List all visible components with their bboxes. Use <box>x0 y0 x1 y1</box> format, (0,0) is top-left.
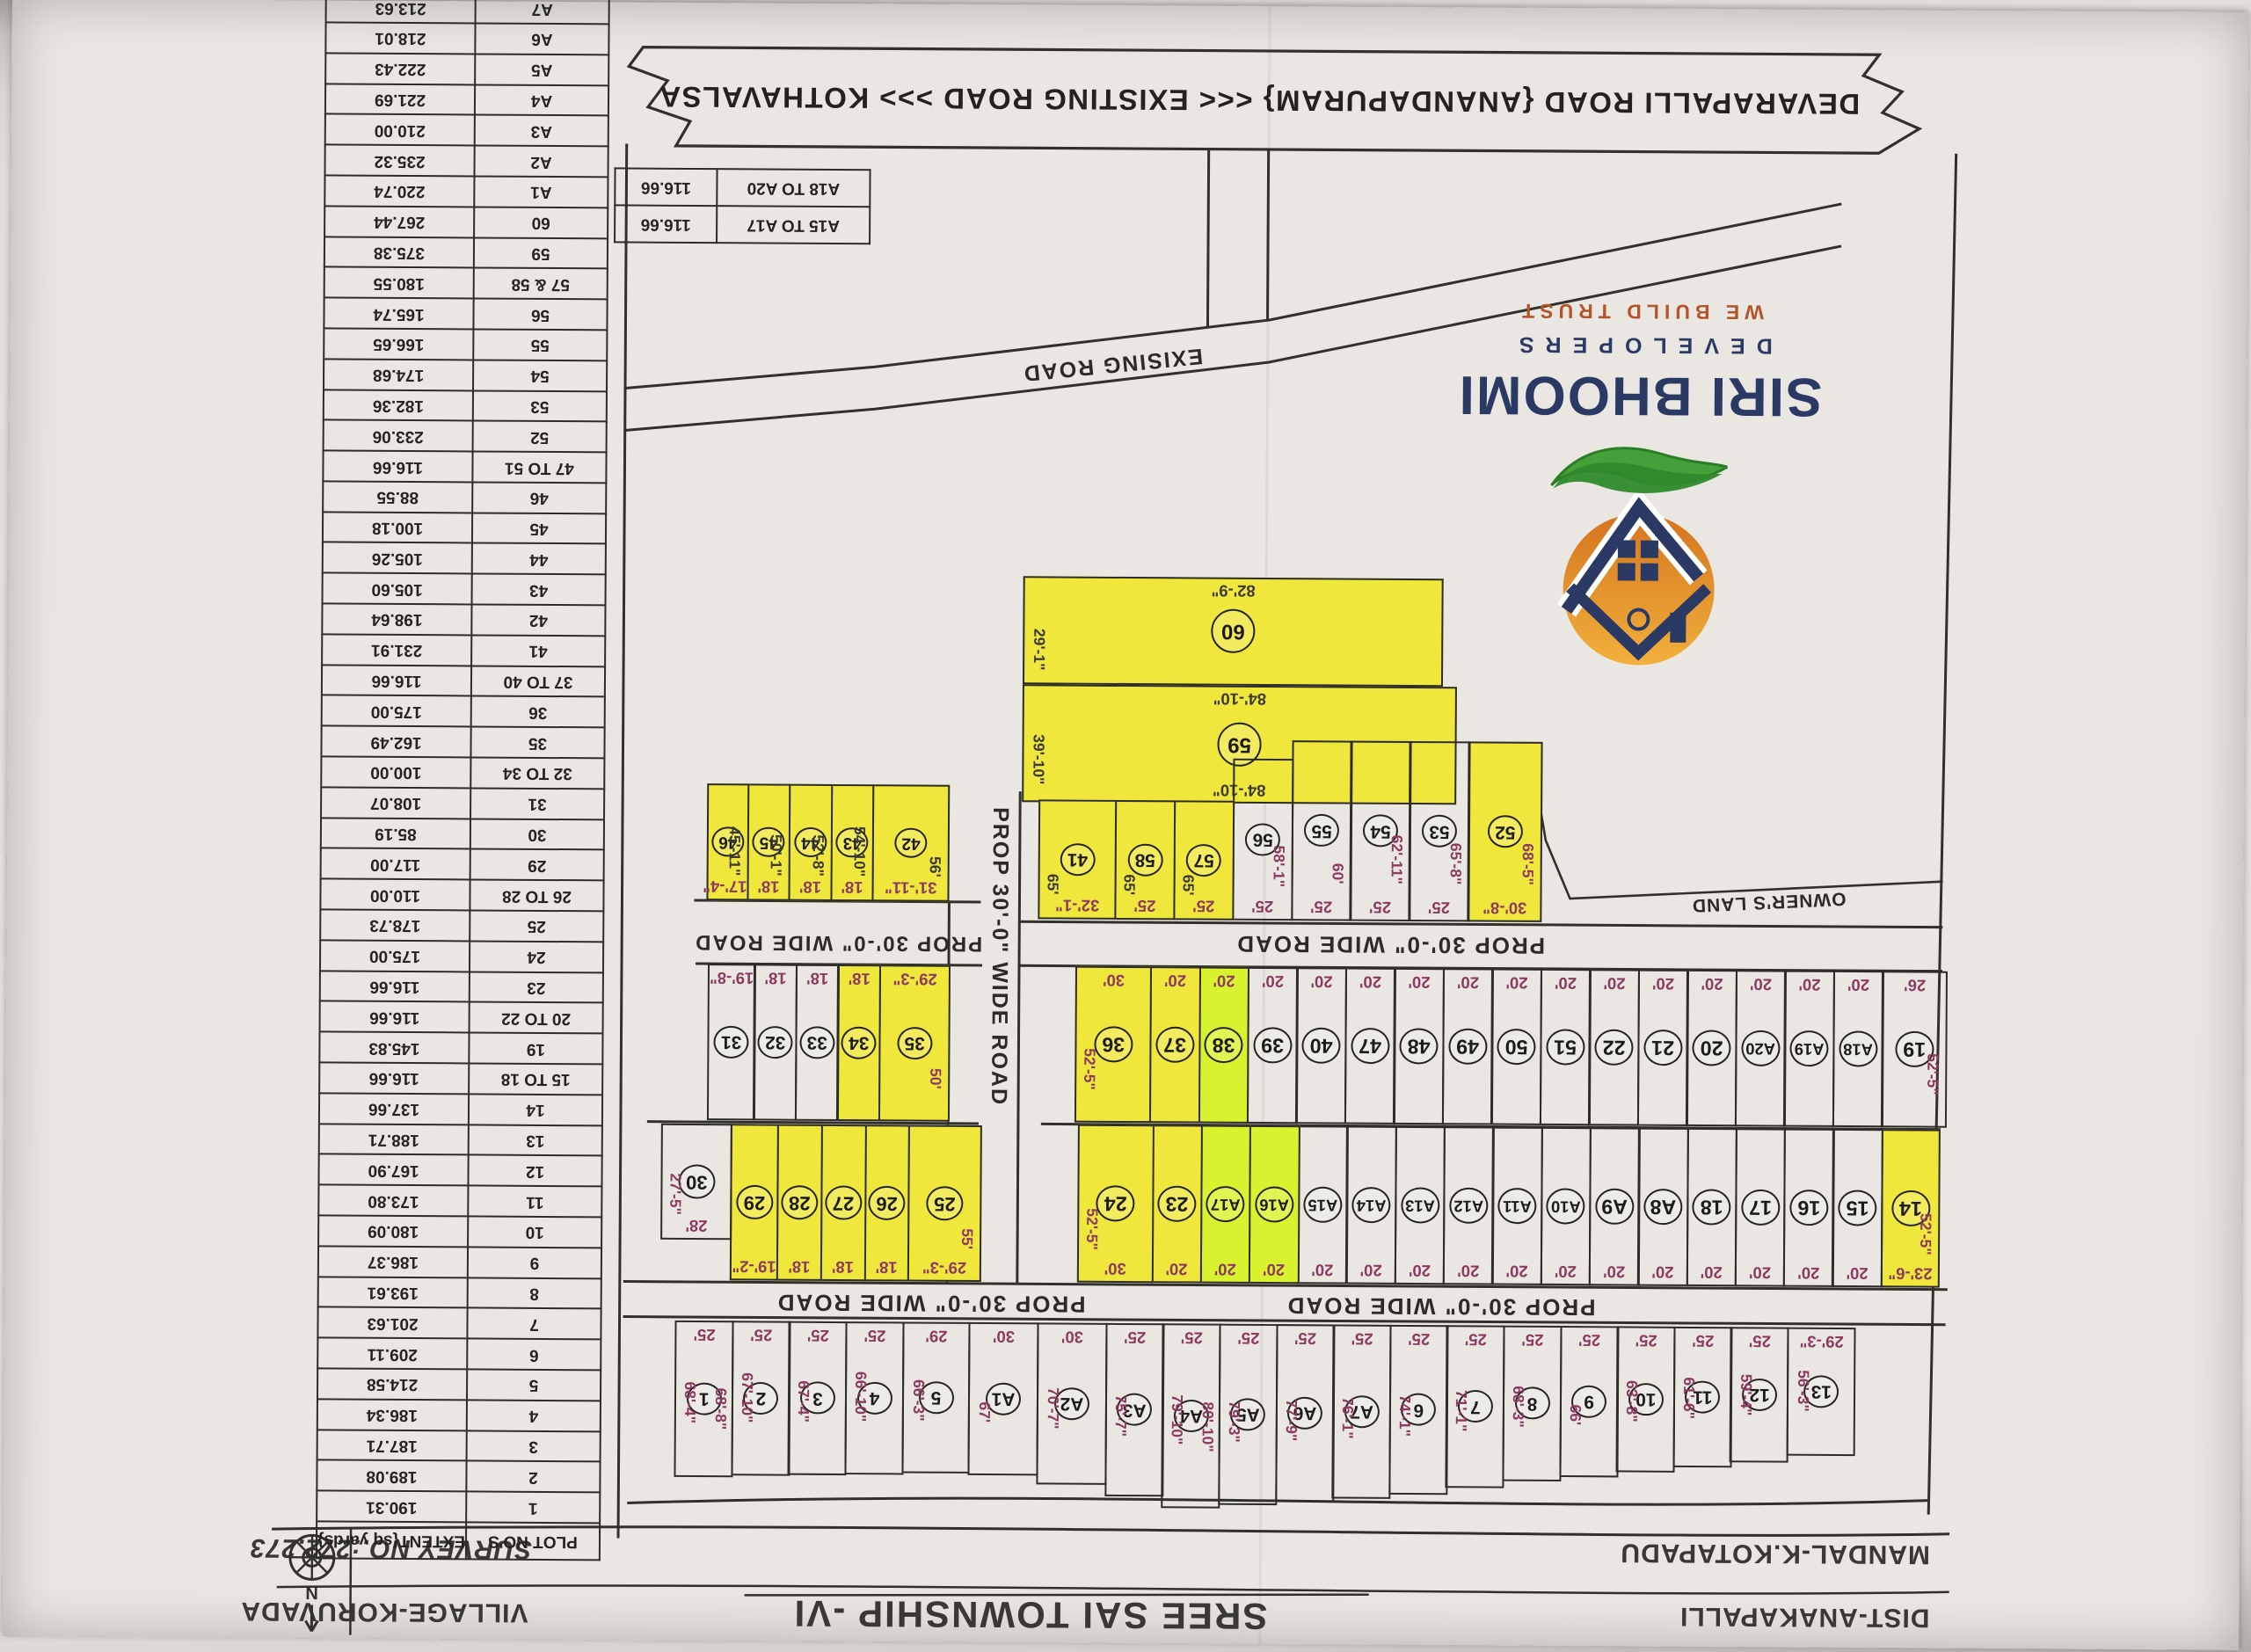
plot-4: 25'466'-10" <box>845 1321 905 1474</box>
plot-46: 17'-4"4645'-11" <box>706 783 749 900</box>
plot-37: 20'37 <box>1149 966 1201 1123</box>
table-row: 23116.66 <box>320 971 603 1003</box>
plot-34-number: 34 <box>841 1026 877 1059</box>
plot-A2-width: 30' <box>1038 1327 1105 1346</box>
extent-cell: 100.00 <box>321 756 470 788</box>
plotno-cell: 11 <box>468 1186 601 1218</box>
plotno-cell: A3 <box>475 115 608 147</box>
plot-A12-number: A12 <box>1449 1188 1488 1224</box>
plot-A18: 20'A18 <box>1832 971 1884 1127</box>
plot-14-width: 23'-6" <box>1883 1263 1939 1283</box>
plot-36-number: 36 <box>1094 1026 1133 1062</box>
ref-a18-val: 116.66 <box>615 168 717 206</box>
plot-15: 20'15 <box>1832 1129 1883 1287</box>
plot-38-width: 20' <box>1200 972 1248 991</box>
plotno-cell: A7 <box>476 0 609 24</box>
plotno-cell: 19 <box>469 1033 602 1065</box>
developer-logo: SIRI BHOOMI DEVELOPERS WE BUILD TRUST <box>1436 298 1843 695</box>
plot-31-number: 31 <box>714 1026 749 1059</box>
logo-sub: DEVELOPERS <box>1438 331 1842 359</box>
plot-17: 20'17 <box>1735 1128 1787 1286</box>
plotno-cell: 42 <box>471 605 605 637</box>
plot-3-width: 25' <box>790 1326 846 1345</box>
table-row: 25178.73 <box>320 909 603 942</box>
plot-18-number: 18 <box>1693 1190 1731 1226</box>
plot-A16: 20'A16 <box>1249 1125 1300 1284</box>
table-row: 35162.49 <box>321 726 604 759</box>
plotno-cell: A4 <box>475 84 608 116</box>
plot-23-width: 20' <box>1153 1259 1200 1278</box>
plot-58-number: 58 <box>1127 843 1162 876</box>
plot-row-row3135: 29'-3"3550'18'3418'3318'3219'-8"31 <box>696 964 949 1122</box>
plot-20-width: 20' <box>1688 974 1736 993</box>
extent-cell: 178.73 <box>320 909 470 941</box>
owners-land-label: OWNER'S LAND <box>1691 887 1847 915</box>
plotno-cell: 8 <box>468 1277 601 1309</box>
table-row: A6218.01 <box>325 22 608 55</box>
plot-6: 25'674'-1" <box>1388 1325 1448 1495</box>
table-row: 14137.66 <box>319 1093 602 1125</box>
extent-cell: 267.44 <box>324 206 474 237</box>
plot-47: 20'47 <box>1344 968 1396 1124</box>
extent-cell: 167.90 <box>318 1154 468 1186</box>
plot-A1-width: 30' <box>970 1327 1037 1346</box>
plot-58-side: 65' <box>1119 874 1138 895</box>
plot-8: 25'868'-3" <box>1502 1326 1562 1481</box>
table-row: 24175.00 <box>320 940 603 972</box>
extent-cell: 213.63 <box>326 0 476 23</box>
plot-60-number: 60 <box>1211 609 1255 653</box>
plot-13: 29'-3"1356'-3" <box>1787 1328 1856 1456</box>
table-row: 10180.09 <box>318 1215 601 1248</box>
plot-15-number: 15 <box>1838 1190 1876 1226</box>
plot-48-width: 20' <box>1395 972 1443 992</box>
plot-A13-number: A13 <box>1401 1188 1439 1224</box>
table-row: 59375.38 <box>324 237 608 269</box>
plot-35: 29'-3"3550' <box>878 964 951 1121</box>
plot-31: 19'-8"31 <box>707 964 756 1120</box>
plot-18: 20'18 <box>1686 1128 1737 1286</box>
plot-7-side: 71'-1" <box>1452 1390 1470 1432</box>
table-row: A3210.00 <box>325 114 608 147</box>
ref-a18: A18 TO A20 <box>717 169 870 207</box>
extent-cell: 165.74 <box>324 298 473 330</box>
plot-A3-side: 75'-7" <box>1111 1395 1130 1437</box>
plotno-cell: 45 <box>472 513 606 544</box>
plot-41-number: 41 <box>1060 843 1095 876</box>
table-row: 42198.64 <box>322 604 605 637</box>
plotno-cell: 10 <box>468 1216 601 1248</box>
extent-cell: 222.43 <box>325 53 475 84</box>
plot-A6-side: 77'-9" <box>1281 1399 1300 1441</box>
extent-cell: 220.74 <box>324 175 474 207</box>
road-label-a2: PROP 30'-0" WIDE ROAD <box>747 1288 1116 1318</box>
plot-60-side-dim: 29'-1" <box>1030 629 1048 671</box>
plot-55-side: 60' <box>1328 863 1346 884</box>
plot-2-side: 67'-10" <box>738 1372 756 1423</box>
plotno-cell: A5 <box>475 54 608 85</box>
table-row: A7213.63 <box>326 0 609 24</box>
plot-32-number: 32 <box>758 1026 793 1059</box>
plot-43: 18'4354'-10" <box>830 784 875 901</box>
table-body: 1190.312189.083187.714186.345214.586209.… <box>317 0 609 1523</box>
plot-34-width: 18' <box>839 969 879 988</box>
plot-A18-number: A18 <box>1839 1031 1877 1067</box>
extent-cell: 180.09 <box>318 1215 468 1247</box>
plot-29: 19'-2"29 <box>730 1124 780 1280</box>
plotno-cell: A1 <box>474 176 608 207</box>
plotno-cell: 13 <box>469 1124 602 1156</box>
plot-57-number: 57 <box>1186 844 1221 877</box>
plotno-cell: 35 <box>470 727 604 759</box>
plot-9-side: 66' <box>1566 1404 1584 1425</box>
plot-47-number: 47 <box>1351 1028 1389 1064</box>
extent-cell: 218.01 <box>325 22 475 54</box>
plot-7: 25'771'-1" <box>1446 1325 1505 1488</box>
plot-A5: 25'A579'-3" <box>1218 1324 1278 1505</box>
plot-60: 60 82'-9" 29'-1" <box>1023 576 1444 687</box>
district-label: DIST-ANAKAPALLI <box>1679 1601 1930 1633</box>
table-row: 13188.71 <box>319 1124 602 1156</box>
table-row: 32 TO 34100.00 <box>321 756 604 789</box>
plot-A4-side: 79'-10" <box>1168 1394 1186 1445</box>
extent-cell: 233.06 <box>324 420 473 452</box>
plot-38: 20'38 <box>1198 967 1249 1124</box>
plot-23-number: 23 <box>1157 1186 1196 1222</box>
plot-53-width: 25' <box>1410 898 1468 917</box>
plot-30-width: 28' <box>662 1216 730 1235</box>
plot-45-side: 50'-1" <box>767 834 785 877</box>
plot-A1: 30'A167' <box>967 1322 1038 1475</box>
table-row: 8193.61 <box>318 1277 601 1309</box>
extent-cell: 116.66 <box>322 665 471 696</box>
road-label-vertical: PROP 30'-0" WIDE ROAD <box>985 807 1013 1229</box>
bottom-road-banner: DEVARAPALLI ROAD {ANANDAPURAM} <<< EXIST… <box>648 58 1871 142</box>
plotno-cell: 4 <box>467 1400 601 1431</box>
table-row: 20 TO 22116.66 <box>320 1001 603 1034</box>
plot-A8-width: 20' <box>1639 1263 1686 1282</box>
extent-cell: 235.32 <box>324 145 474 177</box>
extent-cell: 175.00 <box>320 940 470 972</box>
plot-36-width: 30' <box>1077 971 1150 991</box>
plot-27-width: 18' <box>821 1257 863 1277</box>
extent-cell: 166.65 <box>324 328 473 360</box>
plot-A8-number: A8 <box>1643 1189 1682 1225</box>
extent-cell: 85.19 <box>321 818 470 849</box>
plot-27: 18'27 <box>820 1124 866 1281</box>
plot-29-number: 29 <box>736 1185 773 1219</box>
table-row: 37 TO 40116.66 <box>322 665 605 697</box>
extent-cell: 116.66 <box>323 451 472 483</box>
plot-A13: 20'A13 <box>1395 1126 1446 1284</box>
table-row: 11173.80 <box>318 1185 601 1218</box>
plot-26-number: 26 <box>868 1186 905 1220</box>
extent-cell: 116.66 <box>319 1062 469 1094</box>
plot-39-number: 39 <box>1253 1027 1292 1063</box>
extent-cell: 180.55 <box>324 267 474 299</box>
mandal-label: MANDAL-K.KOTAPADU <box>1620 1537 1930 1568</box>
plot-8-side: 68'-3" <box>1509 1386 1527 1428</box>
table-row: 7201.63 <box>317 1307 601 1340</box>
plot-43-side: 54'-10" <box>850 826 869 877</box>
plot-56-side: 58'-1" <box>1270 846 1288 888</box>
plot-16: 20'16 <box>1783 1129 1835 1287</box>
plot-A7-side: 76'-1" <box>1338 1397 1357 1439</box>
plot-35-side: 50' <box>927 1068 945 1089</box>
plot-50-width: 20' <box>1493 973 1541 993</box>
plot-1-side2: 68'-8" <box>711 1387 730 1430</box>
plot-55: 25'5560' <box>1291 740 1353 921</box>
extent-cell: 108.07 <box>321 787 470 819</box>
plot-45-width: 18' <box>748 877 789 896</box>
plot-row-midUpper: 23'-6"1452'-5"20'1520'1620'1720'1820'A82… <box>1042 1124 1939 1287</box>
plot-17-width: 20' <box>1737 1263 1784 1282</box>
plot-A14: 20'A14 <box>1345 1126 1397 1284</box>
plot-19: 26'1952'-5" <box>1881 971 1948 1127</box>
plot-11-width: 25' <box>1675 1331 1730 1350</box>
extent-cell: 193.61 <box>318 1277 468 1308</box>
plot-28-number: 28 <box>781 1185 818 1219</box>
extent-cell: 186.34 <box>317 1399 467 1430</box>
ref-table: A15 TO A17 116.66 A18 TO A20 116.66 <box>614 167 871 244</box>
plot-32-width: 18' <box>755 968 796 987</box>
plot-6-side: 74'-1" <box>1395 1394 1414 1437</box>
road-label-b1: PROP 30'-0" WIDE ROAD <box>1214 930 1566 959</box>
plot-55-width: 25' <box>1293 897 1350 916</box>
plot-49: 20'49 <box>1442 968 1494 1124</box>
plot-11-side: 61'-6" <box>1679 1377 1698 1419</box>
plot-39: 20'39 <box>1247 967 1299 1124</box>
plot-44: 18'4452'-8" <box>788 784 833 901</box>
plot-26: 18'26 <box>863 1124 910 1281</box>
plotno-cell: 31 <box>470 788 604 819</box>
plot-24-width: 30' <box>1079 1259 1152 1279</box>
table-row: 2189.08 <box>317 1460 600 1493</box>
plot-A6: 25'A677'-9" <box>1275 1324 1335 1502</box>
extent-cell: 210.00 <box>325 114 475 146</box>
plot-55-number: 55 <box>1304 814 1339 847</box>
plot-51-number: 51 <box>1546 1030 1584 1066</box>
plot-A4-width: 25' <box>1164 1328 1220 1347</box>
table-row: 12167.90 <box>318 1154 601 1187</box>
plot-14-side: 52'-5" <box>1916 1213 1934 1255</box>
plot-10: 25'1063'-8" <box>1616 1326 1676 1472</box>
extent-cell: 214.58 <box>317 1368 467 1400</box>
plotno-cell: A2 <box>474 146 608 178</box>
plot-41: 32'-1"4165' <box>1038 799 1118 920</box>
plot-A11: 20'A11 <box>1491 1127 1543 1285</box>
plot-30: 28'3027'-5" <box>660 1124 732 1240</box>
table-header-extent: EXTENT{sq yards} <box>317 1521 466 1559</box>
plot-A12: 20'A12 <box>1443 1126 1495 1284</box>
plot-21: 20'21 <box>1637 970 1689 1126</box>
plot-A1-side: 67' <box>975 1402 994 1423</box>
table-row: 9186.37 <box>318 1246 601 1278</box>
plot-A13-width: 20' <box>1396 1261 1444 1280</box>
plot-16-width: 20' <box>1785 1263 1832 1283</box>
plotno-cell: 47 TO 51 <box>472 452 606 484</box>
page-title: SREE SAI TOWNSHIP -VI <box>682 1591 1377 1638</box>
plotno-cell: 24 <box>470 941 603 972</box>
plot-A10-number: A10 <box>1547 1189 1585 1225</box>
plot-45: 18'4550'-1" <box>747 783 791 900</box>
extent-cell: 116.66 <box>320 1001 470 1033</box>
layout-sheet: DIST-ANAKAPALLI MANDAL-K.KOTAPADU SREE S… <box>2 0 2248 1650</box>
plot-A11-number: A11 <box>1497 1188 1536 1224</box>
plot-21-number: 21 <box>1643 1030 1682 1066</box>
plot-56-width: 25' <box>1234 897 1291 916</box>
plot-7-width: 25' <box>1448 1329 1504 1349</box>
table-row: A4221.69 <box>325 84 608 116</box>
table-row: 29117.00 <box>321 848 604 881</box>
plot-10-width: 25' <box>1619 1330 1674 1350</box>
plot-54-side: 62'-11" <box>1387 834 1405 884</box>
plot-27-number: 27 <box>825 1185 862 1219</box>
plot-48-number: 48 <box>1399 1029 1438 1065</box>
plot-A16-width: 20' <box>1250 1260 1298 1279</box>
logo-name: SIRI BHOOMI <box>1438 363 1842 428</box>
plot-31-width: 19'-8" <box>710 968 754 987</box>
plot-21-width: 20' <box>1640 974 1687 993</box>
plot-28: 18'28 <box>776 1124 823 1281</box>
extent-cell: 174.68 <box>324 359 473 390</box>
table-row: 60267.44 <box>324 206 608 238</box>
extent-cell: 137.66 <box>319 1093 469 1124</box>
extent-cell: 117.00 <box>321 848 470 880</box>
plot-A10-width: 20' <box>1541 1262 1589 1281</box>
plot-42-width: 31'-11" <box>873 877 948 898</box>
plot-13-width: 29'-3" <box>1788 1332 1854 1351</box>
plot-A14-width: 20' <box>1347 1261 1395 1280</box>
plot-5-width: 29' <box>904 1326 969 1345</box>
plot-12-side: 59'-4" <box>1736 1374 1754 1416</box>
extent-cell: 209.11 <box>317 1338 467 1370</box>
plot-23: 20'23 <box>1151 1124 1203 1283</box>
plot-A15-number: A15 <box>1303 1187 1342 1223</box>
table-row: 26 TO 28110.00 <box>320 879 603 912</box>
plotno-cell: 41 <box>471 635 605 666</box>
plot-19-side: 52'-5" <box>1924 1053 1942 1095</box>
plotno-cell: 12 <box>468 1155 601 1187</box>
plot-37-number: 37 <box>1155 1027 1194 1063</box>
plotno-cell: 25 <box>470 911 603 942</box>
plotno-cell: 5 <box>467 1369 601 1401</box>
table-row: 31108.07 <box>321 787 604 819</box>
plot-A15-width: 20' <box>1299 1260 1346 1279</box>
plot-row-midLower: 26'1952'-5"20'A1820'A1920'A2020'2020'212… <box>1039 965 1946 1127</box>
plot-9-width: 25' <box>1562 1330 1617 1350</box>
table-row: 1190.31 <box>317 1491 600 1524</box>
table-row: 4688.55 <box>323 481 606 513</box>
plot-22-number: 22 <box>1594 1030 1633 1066</box>
plot-5: 29'566'-3" <box>901 1321 971 1473</box>
plot-6-width: 25' <box>1391 1329 1446 1349</box>
plot-A3: 25'A375'-7" <box>1104 1323 1164 1496</box>
table-row: A1220.74 <box>324 175 608 207</box>
extent-cell: 116.66 <box>320 971 470 1002</box>
extent-cell: 88.55 <box>323 481 472 513</box>
extent-table: PLOT NO'S EXTENT{sq yards} 1190.312189.0… <box>316 22 610 1561</box>
plot-18-width: 20' <box>1687 1263 1735 1282</box>
plotno-cell: 3 <box>467 1430 601 1462</box>
extent-cell: 201.63 <box>317 1307 467 1339</box>
plot-row-row5241: 30'-8"5268'-5"25'5365'-8"25'5462'-11"25'… <box>1021 739 1541 922</box>
plot-row-row4246: 31'-11"4256'18'4354'-10"18'4452'-8"18'45… <box>696 783 948 902</box>
plot-1: 25'168'-4"68'-8" <box>674 1321 734 1477</box>
plot-A2: 30'A270'-7" <box>1036 1322 1107 1484</box>
plot-9: 25'966' <box>1559 1326 1619 1477</box>
plot-57-width: 25' <box>1175 896 1232 915</box>
plot-row-row2530: 29'-3"2555'18'2618'2718'2819'-2"2928'302… <box>648 1124 980 1282</box>
plot-51: 20'51 <box>1540 969 1592 1125</box>
plot-44-side: 52'-8" <box>809 835 827 877</box>
plot-A2-side: 70'-7" <box>1044 1387 1062 1430</box>
plotno-cell: 20 TO 22 <box>470 1002 603 1034</box>
plot-A17-number: A17 <box>1206 1186 1245 1222</box>
extent-cell: 173.80 <box>318 1185 468 1217</box>
plotno-cell: 9 <box>468 1247 601 1278</box>
plot-19-width: 26' <box>1883 975 1946 994</box>
plot-37-width: 20' <box>1152 971 1199 990</box>
plot-A3-width: 25' <box>1107 1328 1162 1347</box>
plot-49-width: 20' <box>1445 972 1492 992</box>
plot-8-width: 25' <box>1504 1330 1560 1350</box>
plot-25-width: 29'-3" <box>909 1258 980 1277</box>
plot-4-side: 66'-10" <box>851 1372 870 1422</box>
table-row: A2235.32 <box>324 145 608 178</box>
table-row: 15 TO 18116.66 <box>319 1062 602 1095</box>
plot-52-width: 30'-8" <box>1469 898 1541 917</box>
extent-cell: 186.37 <box>318 1246 468 1277</box>
plot-A20: 20'A20 <box>1735 970 1787 1126</box>
logo-emblem <box>1545 436 1733 694</box>
plot-41-side: 65' <box>1044 873 1062 894</box>
plot-47-width: 20' <box>1347 972 1395 992</box>
exising-road-label: EXISING ROAD <box>988 339 1235 389</box>
plot-46-side: 45'-11" <box>725 826 744 876</box>
plot-A19-number: A19 <box>1789 1030 1828 1066</box>
plot-44-width: 18' <box>790 877 830 897</box>
plotno-cell: 52 <box>473 421 607 453</box>
plotno-cell: 2 <box>466 1461 600 1493</box>
plot-24-number: 24 <box>1096 1185 1135 1221</box>
plot-43-width: 18' <box>832 877 872 897</box>
plot-36: 30'3652'-5" <box>1075 966 1152 1124</box>
plot-25: 29'-3"2555' <box>907 1124 983 1282</box>
plot-A9-number: A9 <box>1595 1189 1634 1225</box>
table-row: 3187.71 <box>317 1430 601 1462</box>
plot-60-bottom-dim: 82'-9" <box>1025 579 1442 601</box>
extent-cell: 198.64 <box>322 604 471 636</box>
plot-53-side: 65'-8" <box>1446 843 1464 885</box>
table-row: 56165.74 <box>324 298 607 331</box>
plot-17-number: 17 <box>1741 1190 1780 1226</box>
plot-25-side: 55' <box>958 1228 976 1249</box>
table-row: 41231.91 <box>322 634 605 666</box>
plotno-cell: 36 <box>471 696 605 728</box>
plot-1-side: 68'-4" <box>681 1381 699 1423</box>
plot-A5-width: 25' <box>1220 1328 1276 1348</box>
plotno-cell: 37 TO 40 <box>471 666 605 697</box>
plotno-cell: 26 TO 28 <box>470 880 603 912</box>
plot-10-side: 63'-8" <box>1622 1380 1641 1423</box>
plot-13-side: 56'-3" <box>1794 1370 1812 1412</box>
plotno-cell: 59 <box>474 237 608 269</box>
extent-cell: 221.69 <box>325 84 475 115</box>
plot-40-width: 20' <box>1298 972 1345 991</box>
plotno-cell: 54 <box>473 360 607 391</box>
plot-33-number: 33 <box>799 1026 834 1059</box>
